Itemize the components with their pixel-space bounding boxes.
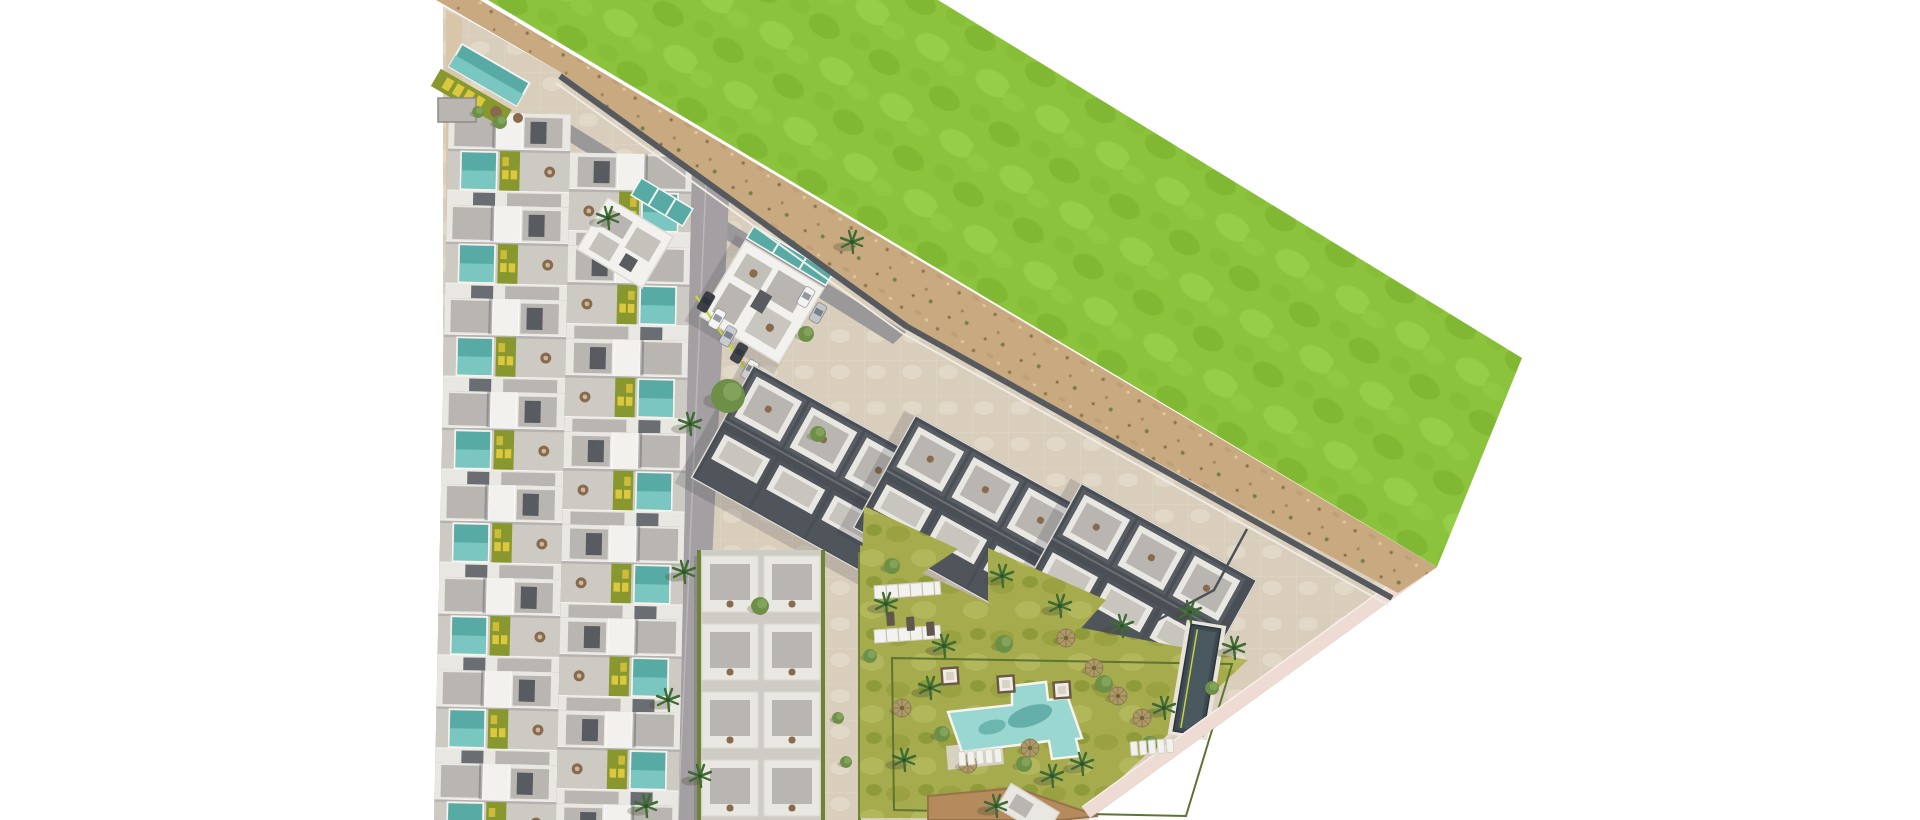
townhouse-module <box>562 431 686 527</box>
apartment-terrace <box>710 632 750 668</box>
terrace-table <box>789 737 796 744</box>
dark-lounger <box>926 621 935 636</box>
townhouse-module <box>435 670 559 766</box>
townhouse-block <box>433 112 693 820</box>
townhouse-module <box>441 391 565 487</box>
hedge-east <box>821 550 825 820</box>
townhouse-module <box>437 577 561 673</box>
site-plan-rendering <box>0 0 1920 820</box>
townhouse-module <box>555 803 679 820</box>
terrace-table <box>789 601 796 608</box>
townhouse-module <box>564 338 688 434</box>
cabana <box>941 667 958 684</box>
cabana <box>1053 681 1070 698</box>
aerial-masterplan-image <box>0 0 1920 820</box>
townhouse-module <box>560 524 684 620</box>
terrace-table <box>727 601 734 608</box>
townhouse-module <box>556 710 680 806</box>
townhouse-module <box>439 484 563 580</box>
apartment-terrace <box>772 768 812 804</box>
terrace-table <box>727 737 734 744</box>
townhouse-module <box>445 205 569 301</box>
apartment-terrace <box>710 564 750 600</box>
apartment-terrace <box>772 564 812 600</box>
apartment-terrace <box>772 700 812 736</box>
dark-lounger <box>906 616 915 631</box>
terrace-table <box>789 669 796 676</box>
apartment-terrace <box>710 700 750 736</box>
apartment-terrace <box>772 632 812 668</box>
terrace-table <box>727 805 734 812</box>
terrace-table <box>727 669 734 676</box>
cabana <box>997 675 1014 692</box>
townhouse-module <box>443 298 567 394</box>
townhouse-module <box>447 112 571 208</box>
townhouse-module <box>433 763 557 820</box>
terrace-table <box>789 805 796 812</box>
apartment-terrace <box>710 768 750 804</box>
